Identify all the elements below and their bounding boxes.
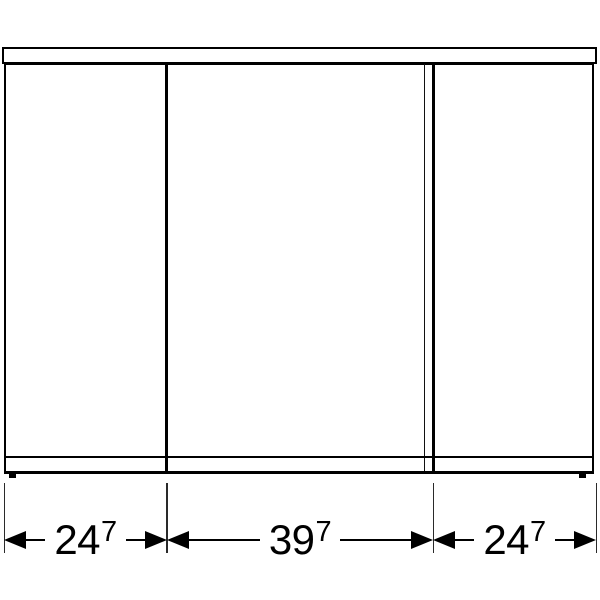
cabinet-technical-drawing: 247 397 247 bbox=[0, 0, 600, 600]
dimension-superscript: 7 bbox=[316, 516, 332, 548]
arrow-left-icon bbox=[433, 531, 455, 549]
dimension-line bbox=[26, 539, 45, 541]
dimension-value: 24 bbox=[54, 516, 100, 563]
dimension-label: 247 bbox=[54, 519, 116, 561]
dimension-line bbox=[189, 539, 260, 541]
dimension-middle-section: 397 bbox=[167, 519, 433, 561]
cabinet-base-line bbox=[6, 456, 592, 458]
dimension-left-section: 247 bbox=[4, 519, 167, 561]
dimension-right-section: 247 bbox=[433, 519, 596, 561]
dimension-line bbox=[126, 539, 145, 541]
arrow-left-icon bbox=[167, 531, 189, 549]
dimension-superscript: 7 bbox=[530, 516, 546, 548]
dimension-line bbox=[340, 539, 411, 541]
arrow-right-icon bbox=[574, 531, 596, 549]
cabinet-foot-right bbox=[579, 473, 586, 478]
dimension-value: 24 bbox=[483, 516, 529, 563]
door-gap-line bbox=[424, 64, 425, 471]
cabinet-top-panel bbox=[2, 47, 597, 64]
dimension-label: 247 bbox=[483, 519, 545, 561]
arrow-right-icon bbox=[411, 531, 433, 549]
door-divider-right bbox=[432, 64, 435, 471]
arrow-left-icon bbox=[4, 531, 26, 549]
cabinet-foot-left bbox=[9, 473, 16, 478]
cabinet-body bbox=[4, 63, 594, 474]
arrow-right-icon bbox=[145, 531, 167, 549]
dimension-label: 397 bbox=[269, 519, 331, 561]
dimension-superscript: 7 bbox=[101, 516, 117, 548]
dimension-line bbox=[555, 539, 574, 541]
dimension-line bbox=[455, 539, 474, 541]
dimension-value: 39 bbox=[269, 516, 315, 563]
door-divider-left bbox=[165, 64, 168, 471]
